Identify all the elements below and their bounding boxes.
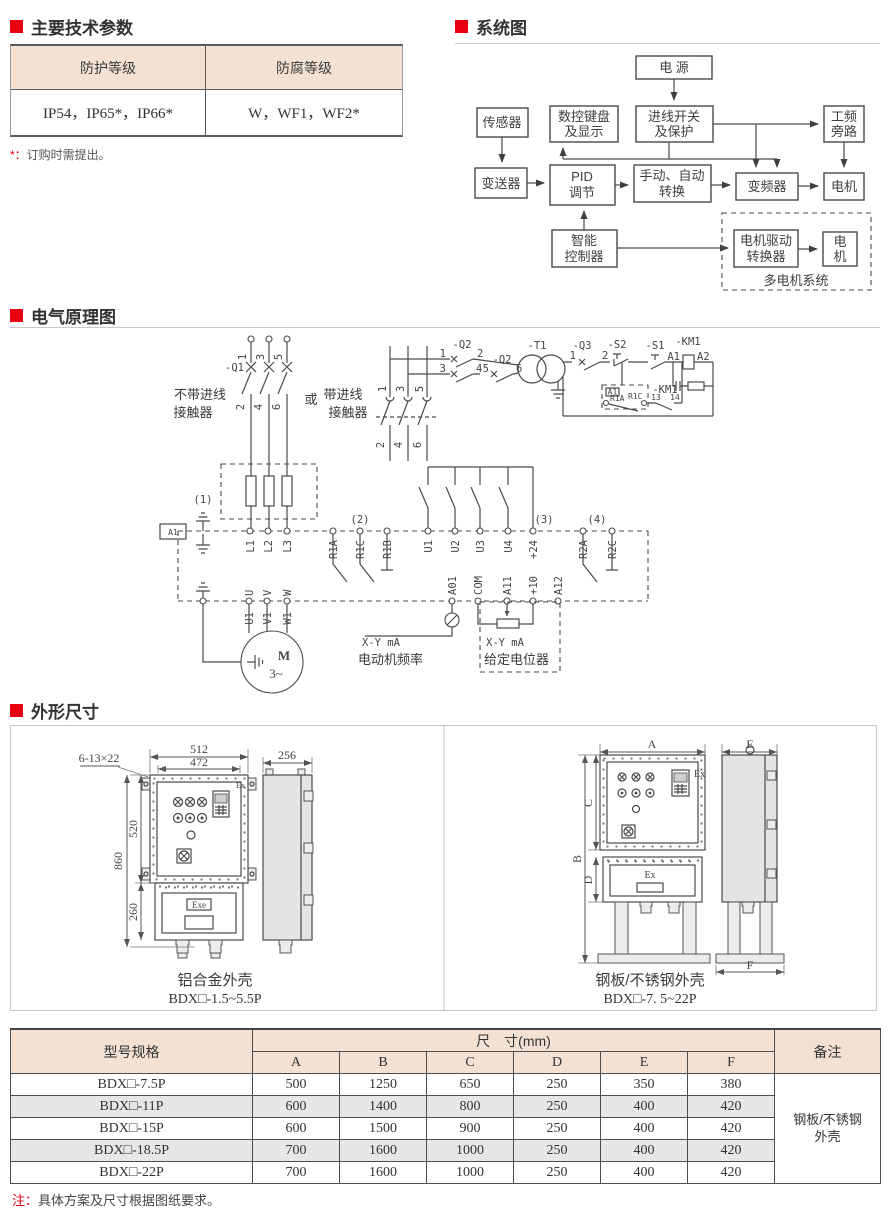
alu-side-view: [263, 757, 313, 953]
dim-a: A: [648, 737, 657, 751]
terminal-label: U4: [503, 540, 515, 553]
terminal-label: W: [282, 589, 294, 596]
terminal-label: U1: [423, 540, 435, 553]
outline-drawings: 512 472 6-13×22 860 520 260 256 Ex Exe 铝…: [10, 725, 877, 1011]
section-outline: 外形尺寸: [10, 698, 99, 723]
motor-3ph: 3~: [269, 666, 283, 681]
wire-label: U1: [244, 612, 256, 625]
label-p4: (4): [588, 514, 607, 526]
dim-520: 520: [126, 820, 140, 838]
dim-cell: 1250: [340, 1074, 427, 1096]
bottom-note: 注：具体方案及尺寸根据图纸要求。: [12, 1190, 220, 1209]
label-a1-block: A1: [168, 528, 178, 537]
ex-mark: Ex: [236, 781, 245, 790]
aux-13: 13: [651, 393, 661, 402]
pole-number: 3: [395, 386, 407, 392]
column-header: 防护等级: [11, 46, 206, 89]
terminal-label: A11: [502, 576, 514, 595]
dim-cell: 1400: [340, 1096, 427, 1118]
terminal-label: R2A: [578, 539, 590, 559]
label-xy-ma: X-Y mA: [362, 637, 401, 649]
dim-cell: 420: [688, 1140, 775, 1162]
dim-cell: 250: [514, 1118, 601, 1140]
node-inlet: 进线开关: [648, 109, 700, 124]
pole-number: 6: [271, 404, 283, 410]
terminal-label: A01: [447, 576, 459, 595]
footnote-text: 订购时需提出。: [27, 148, 111, 162]
dim-cell: 650: [427, 1074, 514, 1096]
model-steel: BDX□-7. 5~22P: [603, 992, 696, 1007]
node-bypass: 工频: [831, 109, 857, 124]
dim-c: C: [581, 799, 595, 807]
alu-front-view: [80, 749, 256, 958]
dim-256: 256: [278, 748, 296, 762]
dim-cell: 1600: [340, 1140, 427, 1162]
table-row: BDX□-15P6001500900250400420: [11, 1118, 881, 1140]
label-s2: -S2: [608, 339, 627, 351]
col-d: D: [514, 1052, 601, 1074]
footnote-star: *：: [10, 148, 27, 162]
dim-cell: 380: [688, 1074, 775, 1096]
dim-cell: 400: [601, 1140, 688, 1162]
table-row: BDX□-18.5P70016001000250400420: [11, 1140, 881, 1162]
remark-cell: 钢板/不锈钢外壳: [775, 1074, 881, 1184]
pole-number: 2: [375, 442, 387, 448]
col-b: B: [340, 1052, 427, 1074]
node-motor2: 电: [833, 234, 846, 249]
label-no-contactor: 接触器: [173, 405, 212, 420]
dim-e: E: [746, 737, 753, 751]
caption-alu: 铝合金外壳: [177, 972, 252, 989]
node-inlet: 及保护: [654, 124, 693, 139]
tech-params-table: 防护等级 防腐等级 IP54，IP65*，IP66* W，WF1，WF2*: [10, 44, 403, 137]
table-row: BDX□-7.5P5001250650250350380钢板/不锈钢外壳: [11, 1074, 881, 1096]
label-t1: -T1: [528, 340, 547, 352]
node-bypass: 旁路: [831, 124, 857, 139]
coil-a1: A1: [667, 351, 680, 363]
steel-front-view: [578, 744, 710, 963]
system-connectors: [502, 79, 844, 249]
dim-cell: 1500: [340, 1118, 427, 1140]
contact-number: 6: [516, 363, 522, 375]
col-c: C: [427, 1052, 514, 1074]
node-pid: 调节: [569, 185, 595, 200]
pole-number: 1: [377, 386, 389, 392]
section-system-diagram: 系统图: [455, 14, 527, 39]
dim-cell: 250: [514, 1074, 601, 1096]
model-alu: BDX□-1.5~5.5P: [168, 992, 261, 1007]
header-model: 型号规格: [11, 1029, 253, 1074]
node-smart: 智能: [571, 233, 597, 248]
red-square-icon: [10, 20, 23, 33]
terminal-label: L2: [263, 540, 275, 553]
contact-number: 3: [440, 363, 446, 375]
dim-d: D: [581, 875, 595, 884]
label-or: 或: [304, 392, 317, 407]
label-q2b: -Q2: [493, 354, 512, 366]
header-dimensions: 尺 寸(mm): [253, 1029, 775, 1052]
label-motor-freq: 电动机频率: [358, 652, 423, 667]
label-with-contactor: 带进线: [323, 387, 362, 402]
pole-number: 4: [393, 442, 405, 448]
node-manual-auto: 手动、自动: [639, 168, 704, 183]
wire-label: V1: [262, 612, 274, 625]
node-motor: 电机: [831, 179, 857, 194]
terminal-label: U: [244, 590, 256, 596]
terminal-label: L1: [245, 540, 257, 553]
label-with-contactor: 接触器: [328, 405, 367, 420]
terminal-label: U2: [450, 540, 462, 553]
label-km1-coil: -KM1: [675, 336, 700, 348]
dim-cell: 420: [688, 1118, 775, 1140]
coil-a2: A2: [697, 351, 710, 363]
contact-number: 5: [483, 363, 489, 375]
divider: [10, 327, 880, 328]
size-table-body: BDX□-7.5P5001250650250350380钢板/不锈钢外壳BDX□…: [11, 1074, 881, 1184]
section-title: 系统图: [476, 14, 527, 39]
dim-260: 260: [126, 903, 140, 921]
node-manual-auto: 转换: [659, 184, 685, 199]
col-a: A: [253, 1052, 340, 1074]
label-q3: -Q3: [573, 340, 592, 352]
column-header: 防腐等级: [206, 46, 402, 89]
note-label: 注：: [12, 1193, 38, 1208]
dim-cell: 250: [514, 1162, 601, 1184]
dim-cell: 500: [253, 1074, 340, 1096]
ex-mark: Ex: [694, 769, 705, 780]
node-motor2: 机: [833, 249, 846, 264]
contact-number: 4: [476, 363, 482, 375]
col-e: E: [601, 1052, 688, 1074]
terminal-label: +24: [528, 540, 540, 559]
breaker-q1: [242, 336, 292, 528]
label-q2: -Q2: [453, 339, 472, 351]
dim-860: 860: [111, 852, 125, 870]
ex-mark-2: Ex: [644, 870, 655, 881]
label-r1a-contact: R1A: [610, 394, 625, 403]
dim-472: 472: [190, 755, 208, 769]
label-potentiometer: 给定电位器: [484, 652, 549, 667]
dim-b: B: [570, 855, 584, 863]
dim-f: F: [747, 958, 754, 972]
caption-steel: 钢板/不锈钢外壳: [595, 971, 704, 989]
section-title: 主要技术参数: [31, 14, 133, 39]
multi-motor-label: 多电机系统: [763, 273, 828, 288]
terminal-label: COM: [473, 576, 485, 595]
section-title: 电气原理图: [31, 303, 116, 328]
terminal-label: R1B: [382, 540, 394, 559]
dim-cell: 400: [601, 1162, 688, 1184]
dim-cell: 600: [253, 1096, 340, 1118]
node-vfd: 变频器: [747, 179, 786, 194]
note-text: 具体方案及尺寸根据图纸要求。: [38, 1193, 220, 1208]
label-s1: -S1: [646, 340, 665, 352]
terminal-label: A12: [553, 576, 565, 595]
table-row: BDX□-22P70016001000250400420: [11, 1162, 881, 1184]
node-pid: PID: [571, 169, 593, 184]
label-q1: -Q1: [225, 362, 244, 374]
node-keypad: 及显示: [564, 124, 603, 139]
node-keypad: 数控键盘: [558, 109, 610, 124]
pole-number: 3: [255, 354, 267, 360]
dim-cell: 250: [514, 1096, 601, 1118]
dim-cell: 1600: [340, 1162, 427, 1184]
label-xy-ma-2: X-Y mA: [486, 637, 525, 649]
terminal-label: R1C: [355, 540, 367, 559]
terminal-label: V: [262, 589, 274, 596]
node-transmitter: 变送器: [481, 176, 520, 191]
input-switches: [419, 467, 533, 528]
ground-symbols: [196, 513, 210, 598]
red-square-icon: [10, 704, 23, 717]
pole-number: 5: [414, 386, 426, 392]
dim-cell: 700: [253, 1162, 340, 1184]
contact-number: 2: [602, 350, 608, 362]
label-p1: (1): [194, 494, 213, 506]
node-drive: 转换器: [746, 249, 785, 264]
dim-cell: 250: [514, 1140, 601, 1162]
dim-512: 512: [190, 742, 208, 756]
contact-number: 1: [440, 348, 446, 360]
electrical-schematic: -Q1 1 3 5 2 4 6 不带进线 接触器 或 带进线 接触器 (1) A…: [10, 333, 878, 695]
model-cell: BDX□-15P: [11, 1118, 253, 1140]
wire-label: W1: [282, 612, 294, 625]
terminal-label: L3: [282, 540, 294, 553]
node-smart: 控制器: [564, 249, 603, 264]
analog-output: [365, 604, 459, 636]
terminal-label: U3: [475, 540, 487, 553]
node-drive: 电机驱动: [740, 233, 792, 248]
node-sensor: 传感器: [482, 115, 521, 130]
section-schematic: 电气原理图: [10, 303, 116, 328]
dim-cell: 700: [253, 1140, 340, 1162]
pole-number: 1: [237, 354, 249, 360]
dim-holes: 6-13×22: [79, 751, 120, 765]
col-f: F: [688, 1052, 775, 1074]
label-r1c-contact: R1C: [628, 392, 643, 401]
pole-number: 6: [412, 442, 424, 448]
model-cell: BDX□-7.5P: [11, 1074, 253, 1096]
dim-cell: 420: [688, 1162, 775, 1184]
header-remark: 备注: [775, 1029, 881, 1074]
divider: [455, 43, 880, 44]
dim-cell: 1000: [427, 1162, 514, 1184]
pole-number: 5: [273, 354, 285, 360]
motor-m: M: [278, 648, 290, 663]
label-no-contactor: 不带进线: [174, 387, 226, 402]
size-table: 型号规格 尺 寸(mm) 备注 A B C D E F BDX□-7.5P500…: [10, 1028, 881, 1184]
cell-value: IP54，IP65*，IP66*: [11, 90, 206, 135]
dim-cell: 900: [427, 1118, 514, 1140]
label-p2: (2): [351, 514, 370, 526]
exe-mark: Exe: [192, 900, 206, 910]
dim-cell: 400: [601, 1096, 688, 1118]
table-row: BDX□-11P6001400800250400420: [11, 1096, 881, 1118]
terminal-label: R2C: [607, 540, 619, 559]
red-square-icon: [10, 309, 23, 322]
pole-number: 4: [253, 404, 265, 410]
inverter-outline: [160, 524, 648, 601]
dim-cell: 1000: [427, 1140, 514, 1162]
system-diagram: 电 源 传感器 数控键盘 及显示 进线开关 及保护 工频 旁路 变送器 PID …: [455, 52, 885, 302]
terminal-label: R1A: [328, 539, 340, 559]
model-cell: BDX□-18.5P: [11, 1140, 253, 1162]
terminal-label: +10: [528, 576, 540, 595]
dim-cell: 420: [688, 1096, 775, 1118]
dim-cell: 800: [427, 1096, 514, 1118]
contact-number: 2: [477, 348, 483, 360]
catalog-page: 主要技术参数 系统图 防护等级 防腐等级 IP54，IP65*，IP66* W，…: [0, 0, 890, 1216]
section-title: 外形尺寸: [31, 698, 99, 723]
dim-cell: 600: [253, 1118, 340, 1140]
dim-cell: 350: [601, 1074, 688, 1096]
node-power: 电 源: [659, 60, 689, 75]
section-tech-params: 主要技术参数: [10, 14, 133, 39]
dim-cell: 400: [601, 1118, 688, 1140]
pole-number: 2: [235, 404, 247, 410]
footnote: *：订购时需提出。: [10, 146, 111, 163]
cell-value: W，WF1，WF2*: [206, 90, 402, 135]
model-cell: BDX□-22P: [11, 1162, 253, 1184]
label-p3: (3): [535, 514, 554, 526]
aux-14: 14: [670, 393, 680, 402]
steel-side-view: [716, 744, 784, 975]
model-cell: BDX□-11P: [11, 1096, 253, 1118]
red-square-icon: [455, 20, 468, 33]
